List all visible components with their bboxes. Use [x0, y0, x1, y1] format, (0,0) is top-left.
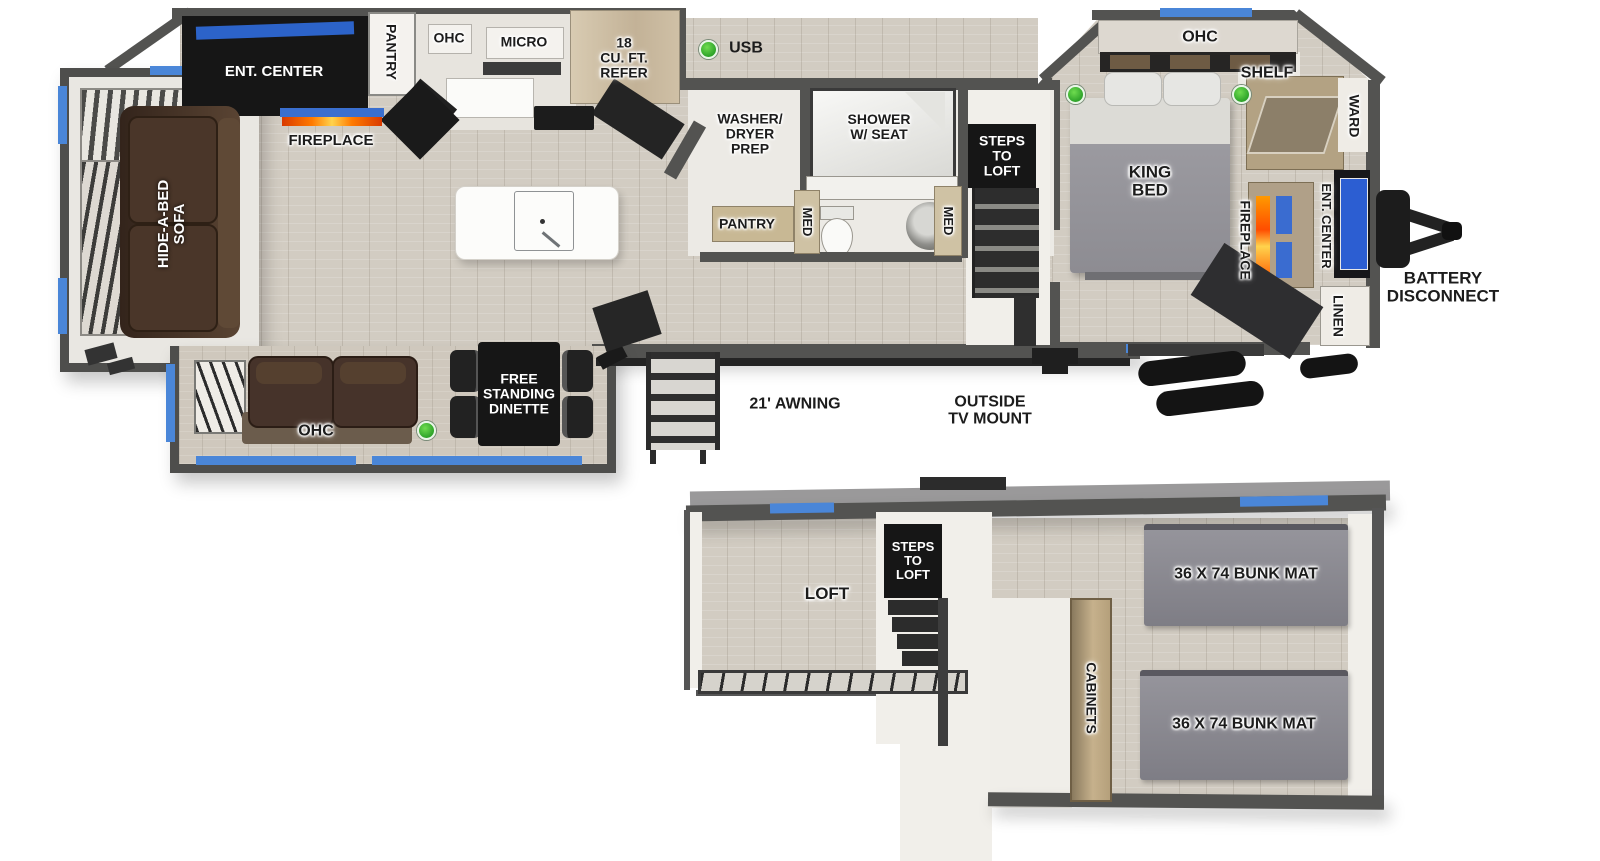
dinette-chair-tr: [562, 350, 593, 392]
theater-seat-right-cushion: [340, 362, 406, 384]
usb-label: USB: [729, 39, 763, 56]
loft-roof-vent: [920, 477, 1006, 490]
door-slide-window-left: [166, 364, 175, 442]
bunkroom-right-outer-wall: [1372, 508, 1384, 808]
loft-stair-2: [892, 617, 940, 632]
washer-dryer-label: WASHER/ DRYER PREP: [717, 111, 782, 156]
med-left-label: MED: [800, 208, 814, 237]
rv-floorplan: HIDE-A-BED SOFA ENT. CENTER FIREPLACE PA…: [0, 0, 1600, 861]
cooktop: [534, 106, 594, 130]
pillow-left: [1104, 72, 1162, 106]
shower-label: SHOWER W/ SEAT: [848, 112, 911, 142]
bunk-mat-top-label: 36 X 74 BUNK MAT: [1174, 565, 1318, 582]
bedroom-fireplace-door-top: [1276, 196, 1292, 234]
bedroom-usb-dot-left: [1066, 85, 1085, 104]
door-slide-window-bottom-right: [372, 456, 582, 465]
loft-stair-3: [897, 634, 941, 649]
loft-railing: [698, 670, 968, 694]
bedroom-fireplace-label: FIREPLACE: [1237, 200, 1252, 279]
linen-label: LINEN: [1330, 295, 1345, 337]
loft-staircase-main: [972, 188, 1039, 298]
loft-staircase-lower-wall: [1014, 296, 1036, 346]
wall-bath-bottom: [700, 252, 962, 262]
bedroom-tv-screen: [1340, 178, 1368, 270]
door-slide-window-bottom-left: [196, 456, 356, 465]
kitchen-ohc-label: OHC: [433, 30, 464, 45]
bedroom-usb-dot-right: [1232, 85, 1251, 104]
cabinets-label: CABINETS: [1083, 662, 1098, 734]
ent-center-label: ENT. CENTER: [225, 64, 323, 80]
fireplace-label: FIREPLACE: [288, 133, 373, 149]
range-hood: [483, 62, 561, 75]
headboard-inlay-1: [1110, 55, 1150, 69]
kitchen-pantry-label: PANTRY: [383, 24, 398, 80]
outside-tv-label: OUTSIDE TV MOUNT: [948, 394, 1032, 429]
hide-a-bed-sofa-label: HIDE-A-BED SOFA: [156, 180, 188, 268]
refrigerator-label: 18 CU. FT. REFER: [600, 35, 647, 80]
loft-left-wall: [690, 512, 702, 688]
sofa-seat-front: [218, 118, 240, 328]
rear-slide-window-left-bottom: [58, 278, 67, 334]
steps-to-loft-label-main: STEPS TO LOFT: [979, 133, 1025, 178]
steps-to-loft-label-loft: STEPS TO LOFT: [892, 540, 935, 582]
loft-stair-4: [902, 651, 942, 666]
bedroom-top-window: [1160, 8, 1252, 17]
entry-steps-leg-right: [700, 450, 706, 464]
dinette-chair-br: [562, 396, 593, 438]
shelf-label: SHELF: [1241, 64, 1293, 81]
theater-seat-left-cushion: [256, 362, 322, 384]
awning-label: 21' AWNING: [749, 395, 840, 412]
bedroom-ohc-label: OHC: [1182, 28, 1218, 45]
hitch-coupler: [1442, 222, 1462, 240]
kitchen-sink: [446, 78, 534, 118]
bunk-mat-bottom-label: 36 X 74 BUNK MAT: [1172, 715, 1316, 732]
island-sink-drain: [540, 219, 545, 224]
fireplace-flame: [282, 117, 382, 126]
bunkroom-left-wall: [990, 598, 1072, 808]
tongue-jack: [1376, 190, 1410, 268]
loft-stair-1: [888, 600, 940, 615]
fireplace-glass: [280, 108, 384, 117]
bath-pantry-label: PANTRY: [719, 216, 775, 231]
magazine-rack: [194, 360, 246, 434]
stabilizer-front: [1299, 353, 1359, 380]
bedroom-ent-center-label: ENT. CENTER: [1319, 183, 1333, 268]
loft-stair-wall: [938, 598, 948, 746]
king-bed-label: KING BED: [1129, 164, 1172, 201]
slide-ohc-label: OHC: [298, 422, 334, 439]
pillow-right: [1163, 72, 1221, 106]
outside-tv-bracket-arm: [1042, 364, 1068, 374]
slide-usb-dot: [417, 421, 436, 440]
entry-steps-leg-left: [650, 450, 656, 464]
ward-label: WARD: [1346, 95, 1361, 138]
med-right-label: MED: [941, 207, 955, 236]
dinette-chair-tl: [450, 350, 481, 392]
bunkroom-right-wall: [1348, 514, 1374, 804]
rear-slide-window-left-top: [58, 86, 67, 144]
bedroom-fireplace-door-bottom: [1276, 242, 1292, 278]
loft-window-right: [1240, 495, 1328, 507]
battery-disconnect-label: BATTERY DISCONNECT: [1387, 270, 1499, 307]
usb-indicator-dot: [699, 40, 718, 59]
wheel-fender: [1128, 344, 1264, 356]
microwave-label: MICRO: [501, 34, 548, 49]
wheel-rear: [1155, 380, 1265, 418]
entry-steps: [646, 352, 720, 450]
bed-foot-bench: [1085, 272, 1215, 280]
loft-window-left: [770, 502, 834, 513]
headboard-inlay-2: [1170, 55, 1210, 69]
dinette-chair-bl: [450, 396, 481, 438]
outside-tv-bracket: [1032, 348, 1078, 364]
dinette-label: FREE STANDING DINETTE: [483, 371, 555, 416]
loft-label: LOFT: [805, 585, 849, 603]
